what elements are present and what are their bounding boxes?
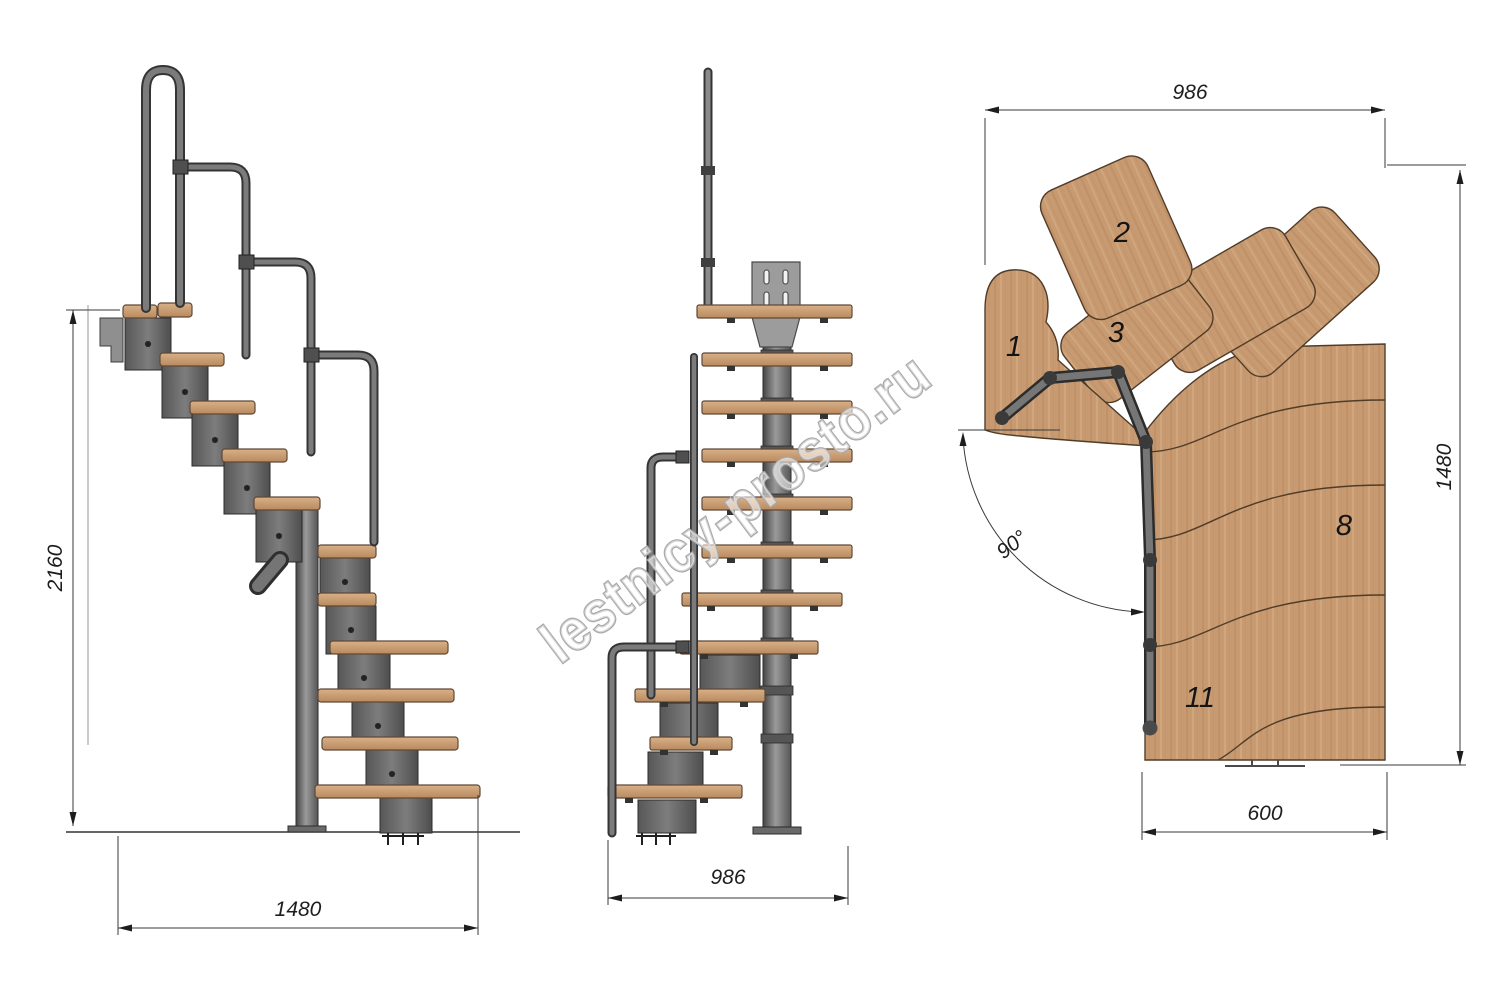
- rail-clamp: [676, 451, 689, 463]
- staircase-drawing-canvas: 2160 1480: [0, 0, 1500, 987]
- arrowhead-right: [834, 895, 848, 902]
- rail-clamp: [304, 348, 319, 362]
- arrowhead-right: [464, 925, 478, 932]
- arrowhead-left: [985, 107, 999, 114]
- rail-clamp: [173, 160, 188, 174]
- dim-label-side-height: 2160: [44, 544, 67, 592]
- plan-step-label-3: 3: [1108, 317, 1124, 349]
- dim-side-height: [66, 310, 120, 826]
- arrowhead-arc-end: [1131, 609, 1145, 616]
- plan-floor-bracket: [1225, 760, 1305, 766]
- column-base-plate: [288, 826, 326, 832]
- pole-clamp: [701, 258, 715, 267]
- side-elevation-view: 2160 1480: [44, 70, 520, 935]
- plan-straight-flight: [1145, 344, 1385, 760]
- dim-label-plan-flight-width: 600: [1247, 802, 1282, 825]
- plan-step-label-11: 11: [1185, 682, 1215, 714]
- arrowhead-left: [608, 895, 622, 902]
- rail-clamp: [676, 641, 689, 653]
- angle-annotation: [958, 430, 1145, 616]
- wall-bracket: [100, 318, 123, 362]
- central-column: [763, 300, 791, 833]
- pole-clamp: [701, 166, 715, 175]
- arrowhead-right: [1371, 107, 1385, 114]
- arrowhead-down: [1457, 751, 1464, 765]
- arrowhead-arc-start: [960, 432, 967, 446]
- anchor-bolts: [636, 833, 676, 845]
- handrail-end: [1143, 721, 1158, 736]
- anchor-bolts: [382, 833, 424, 845]
- plan-step-label-2: 2: [1113, 217, 1130, 249]
- arrowhead-right: [1373, 829, 1387, 836]
- rail-clamp: [239, 255, 254, 269]
- arrowhead-left: [118, 925, 132, 932]
- arrowhead-down: [70, 812, 77, 826]
- dim-label-plan-width: 986: [1172, 81, 1207, 104]
- plan-step-label-1: 1: [1006, 331, 1022, 363]
- dim-label-front-width: 986: [710, 866, 745, 889]
- handrail-end-cap: [258, 560, 280, 586]
- angle-label: 90°: [992, 526, 1031, 564]
- arrowhead-up: [70, 310, 77, 324]
- dim-label-side-width: 1480: [275, 898, 322, 921]
- column-base-plate: [753, 827, 801, 834]
- arrowhead-left: [1142, 829, 1156, 836]
- dim-label-plan-depth: 1480: [1433, 443, 1456, 490]
- plan-view: 1 2 3 8 11 986 1480: [958, 81, 1466, 840]
- technical-drawing-sheet: 2160 1480: [0, 0, 1500, 987]
- handrail-loop: [146, 70, 180, 308]
- plan-step-label-8: 8: [1336, 510, 1352, 542]
- arrowhead-up: [1457, 170, 1464, 184]
- watermark-text: lestnicy-prosto.ru: [529, 341, 943, 676]
